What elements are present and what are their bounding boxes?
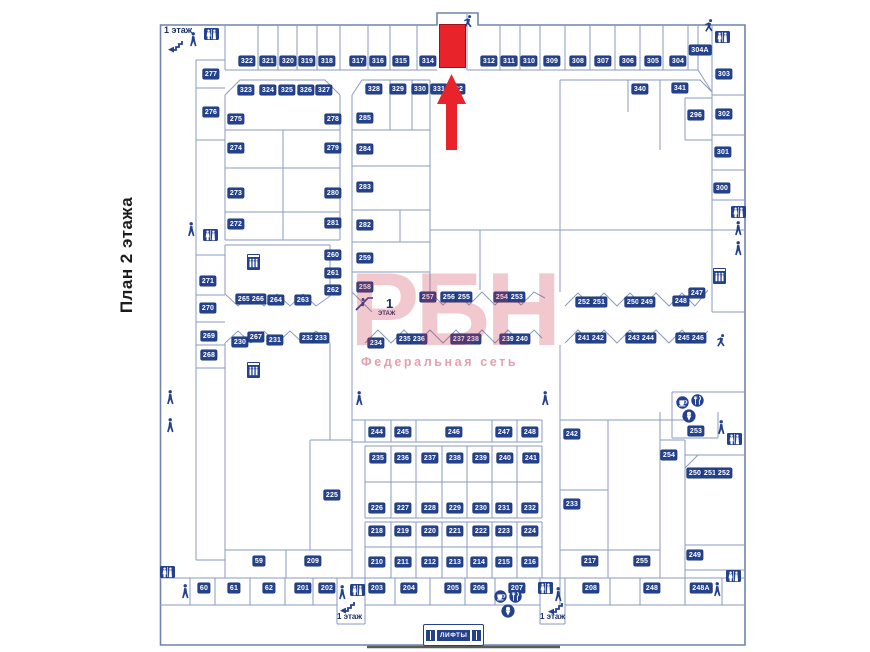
unit-label-59: 59 (253, 556, 265, 566)
unit-label-249: 249 (639, 297, 655, 307)
unit-label-209: 209 (305, 556, 321, 566)
wc-icon (350, 584, 365, 596)
unit-label-306: 306 (620, 56, 636, 66)
unit-label-341: 341 (672, 83, 688, 93)
food-cup-icon (676, 396, 689, 409)
unit-label-308: 308 (570, 56, 586, 66)
unit-label-256: 256 (441, 292, 457, 302)
unit-label-283: 283 (357, 182, 373, 192)
unit-label-252: 252 (576, 297, 592, 307)
unit-label-262: 262 (325, 285, 341, 295)
unit-label-257: 257 (420, 292, 436, 302)
unit-label-254: 254 (661, 450, 677, 460)
unit-label-284: 284 (357, 144, 373, 154)
unit-label-263: 263 (295, 295, 311, 305)
unit-label-210: 210 (369, 557, 385, 567)
unit-label-281: 281 (325, 218, 341, 228)
unit-label-237: 237 (422, 453, 438, 463)
unit-label-330: 330 (412, 84, 428, 94)
unit-label-314: 314 (420, 56, 436, 66)
runner-icon (715, 334, 727, 348)
unit-label-236: 236 (411, 334, 427, 344)
person-icon (540, 391, 550, 406)
wc-icon (204, 28, 219, 40)
unit-label-218: 218 (369, 526, 385, 536)
unit-label-248: 248 (522, 427, 538, 437)
unit-label-276: 276 (203, 107, 219, 117)
food-cup-icon (494, 590, 507, 603)
unit-label-253: 253 (688, 426, 704, 436)
person-icon (716, 420, 726, 435)
person-icon (337, 585, 347, 600)
unit-label-231: 231 (267, 335, 283, 345)
person-icon (712, 582, 722, 597)
unit-label-323: 323 (238, 85, 254, 95)
unit-label-302: 302 (716, 109, 732, 119)
unit-label-312: 312 (481, 56, 497, 66)
unit-label-60: 60 (198, 583, 210, 593)
unit-label-244: 244 (369, 427, 385, 437)
elevator-icon (472, 630, 481, 641)
escalator-icon (355, 294, 375, 312)
unit-label-216: 216 (522, 557, 538, 567)
unit-label-321: 321 (260, 56, 276, 66)
unit-label-300: 300 (714, 183, 730, 193)
unit-label-235: 235 (370, 453, 386, 463)
unit-label-61: 61 (228, 583, 240, 593)
unit-label-62: 62 (263, 583, 275, 593)
unit-label-233: 233 (313, 333, 329, 343)
unit-label-229: 229 (447, 503, 463, 513)
floor-1-label: 1 этаж (164, 26, 192, 35)
unit-label-250: 250 (687, 468, 703, 478)
wc-icon (715, 31, 730, 43)
unit-label-316: 316 (370, 56, 386, 66)
unit-label-231: 231 (496, 503, 512, 513)
unit-label-268: 268 (201, 350, 217, 360)
unit-label-329: 329 (390, 84, 406, 94)
unit-label-315: 315 (393, 56, 409, 66)
unit-label-247: 247 (496, 427, 512, 437)
unit-label-236: 236 (395, 453, 411, 463)
unit-label-304: 304 (670, 56, 686, 66)
unit-label-270: 270 (200, 303, 216, 313)
unit-label-304A: 304A (689, 45, 711, 55)
unit-label-303: 303 (716, 69, 732, 79)
person-icon (186, 222, 196, 237)
unit-label-296: 296 (688, 110, 704, 120)
unit-label-254: 254 (494, 292, 510, 302)
highlight-arrow-icon (430, 70, 474, 154)
floor-plan: План 2 этажа РБН Федеральная сеть ЛИФТЫ … (0, 0, 870, 652)
unit-label-242: 242 (564, 429, 580, 439)
unit-label-203: 203 (369, 583, 385, 593)
unit-label-230: 230 (473, 503, 489, 513)
unit-label-278: 278 (325, 114, 341, 124)
unit-label-239: 239 (473, 453, 489, 463)
unit-label-307: 307 (595, 56, 611, 66)
unit-label-275: 275 (228, 114, 244, 124)
unit-label-317: 317 (350, 56, 366, 66)
unit-label-324: 324 (260, 85, 276, 95)
unit-label-248: 248 (644, 583, 660, 593)
person-icon (354, 391, 364, 406)
food-snack-icon (682, 409, 696, 423)
unit-label-340: 340 (632, 84, 648, 94)
unit-label-208: 208 (583, 583, 599, 593)
unit-label-310: 310 (521, 56, 537, 66)
unit-label-258: 258 (357, 282, 373, 292)
person-icon (733, 241, 743, 256)
wc-icon (727, 433, 742, 445)
unit-label-277: 277 (203, 69, 219, 79)
unit-label-246: 246 (690, 333, 706, 343)
food-restaurant-icon (509, 590, 522, 603)
unit-label-233: 233 (564, 499, 580, 509)
unit-label-305: 305 (645, 56, 661, 66)
unit-label-232: 232 (522, 503, 538, 513)
unit-label-322: 322 (239, 56, 255, 66)
unit-label-201: 201 (295, 583, 311, 593)
person-icon (180, 584, 190, 599)
unit-label-271: 271 (200, 276, 216, 286)
unit-label-260: 260 (325, 250, 341, 260)
unit-label-246: 246 (446, 427, 462, 437)
unit-label-215: 215 (496, 557, 512, 567)
wc-icon (731, 206, 746, 218)
unit-label-285: 285 (357, 113, 373, 123)
unit-label-327: 327 (316, 85, 332, 95)
unit-label-266: 266 (250, 294, 266, 304)
unit-label-212: 212 (422, 557, 438, 567)
unit-label-205: 205 (445, 583, 461, 593)
unit-label-280: 280 (325, 188, 341, 198)
unit-label-248: 248 (673, 296, 689, 306)
unit-label-282: 282 (357, 220, 373, 230)
unit-label-252: 252 (716, 468, 732, 478)
unit-label-225: 225 (324, 490, 340, 500)
unit-label-240: 240 (514, 334, 530, 344)
page-title: План 2 этажа (117, 190, 137, 320)
unit-label-311: 311 (501, 56, 517, 66)
unit-label-221: 221 (447, 526, 463, 536)
unit-label-204: 204 (401, 583, 417, 593)
unit-label-226: 226 (369, 503, 385, 513)
person-icon (165, 390, 175, 405)
unit-label-238: 238 (447, 453, 463, 463)
wc-icon (160, 566, 175, 578)
wc-icon (726, 570, 741, 582)
unit-label-309: 309 (544, 56, 560, 66)
unit-label-319: 319 (299, 56, 315, 66)
floor-1-label: 1 этаж (540, 613, 565, 621)
unit-label-247: 247 (689, 288, 705, 298)
unit-label-249: 249 (687, 550, 703, 560)
unit-label-261: 261 (325, 268, 341, 278)
unit-label-259: 259 (357, 253, 373, 263)
unit-label-245: 245 (395, 427, 411, 437)
unit-label-326: 326 (298, 85, 314, 95)
unit-label-318: 318 (319, 56, 335, 66)
unit-label-220: 220 (422, 526, 438, 536)
unit-label-222: 222 (473, 526, 489, 536)
stairs-icon (167, 40, 183, 53)
floor-1-label: 1 (386, 297, 393, 310)
unit-label-227: 227 (395, 503, 411, 513)
unit-label-206: 206 (471, 583, 487, 593)
unit-label-279: 279 (325, 143, 341, 153)
lifts-label: ЛИФТЫ (437, 630, 470, 641)
unit-label-211: 211 (395, 557, 411, 567)
unit-label-242: 242 (590, 333, 606, 343)
highlighted-unit (439, 24, 466, 68)
unit-label-202: 202 (319, 583, 335, 593)
unit-label-325: 325 (279, 85, 295, 95)
unit-label-234: 234 (368, 338, 384, 348)
person-icon (733, 221, 743, 236)
unit-label-230: 230 (232, 337, 248, 347)
unit-label-224: 224 (522, 526, 538, 536)
lifts-badge: ЛИФТЫ (423, 624, 484, 646)
person-icon (553, 587, 563, 602)
food-snack-icon (501, 604, 515, 618)
unit-label-267: 267 (248, 332, 264, 342)
unit-label-219: 219 (395, 526, 411, 536)
unit-label-272: 272 (228, 219, 244, 229)
unit-label-255: 255 (456, 292, 472, 302)
unit-label-253: 253 (509, 292, 525, 302)
unit-label-228: 228 (422, 503, 438, 513)
unit-label-264: 264 (268, 295, 284, 305)
unit-label-269: 269 (201, 331, 217, 341)
unit-label-248A: 248A (690, 583, 712, 593)
unit-label-274: 274 (228, 143, 244, 153)
elevator-icon (247, 254, 260, 270)
unit-label-320: 320 (280, 56, 296, 66)
unit-label-214: 214 (471, 557, 487, 567)
unit-label-255: 255 (634, 556, 650, 566)
unit-label-238: 238 (465, 334, 481, 344)
floor-1-label: 1 этаж (337, 613, 362, 621)
wc-icon (538, 582, 553, 594)
unit-label-251: 251 (591, 297, 607, 307)
unit-label-241: 241 (523, 453, 539, 463)
unit-label-328: 328 (366, 84, 382, 94)
unit-label-213: 213 (447, 557, 463, 567)
unit-label-273: 273 (228, 188, 244, 198)
unit-label-217: 217 (582, 556, 598, 566)
runner-icon (703, 19, 715, 33)
unit-label-240: 240 (497, 453, 513, 463)
food-restaurant-icon (691, 394, 704, 407)
unit-label-301: 301 (715, 147, 731, 157)
person-icon (165, 418, 175, 433)
elevator-icon (426, 630, 435, 641)
elevator-icon (713, 268, 726, 284)
floor-1-label: ЭТАЖ (378, 311, 395, 317)
wc-icon (203, 229, 218, 241)
unit-label-223: 223 (496, 526, 512, 536)
unit-label-244: 244 (640, 333, 656, 343)
elevator-icon (247, 362, 260, 378)
